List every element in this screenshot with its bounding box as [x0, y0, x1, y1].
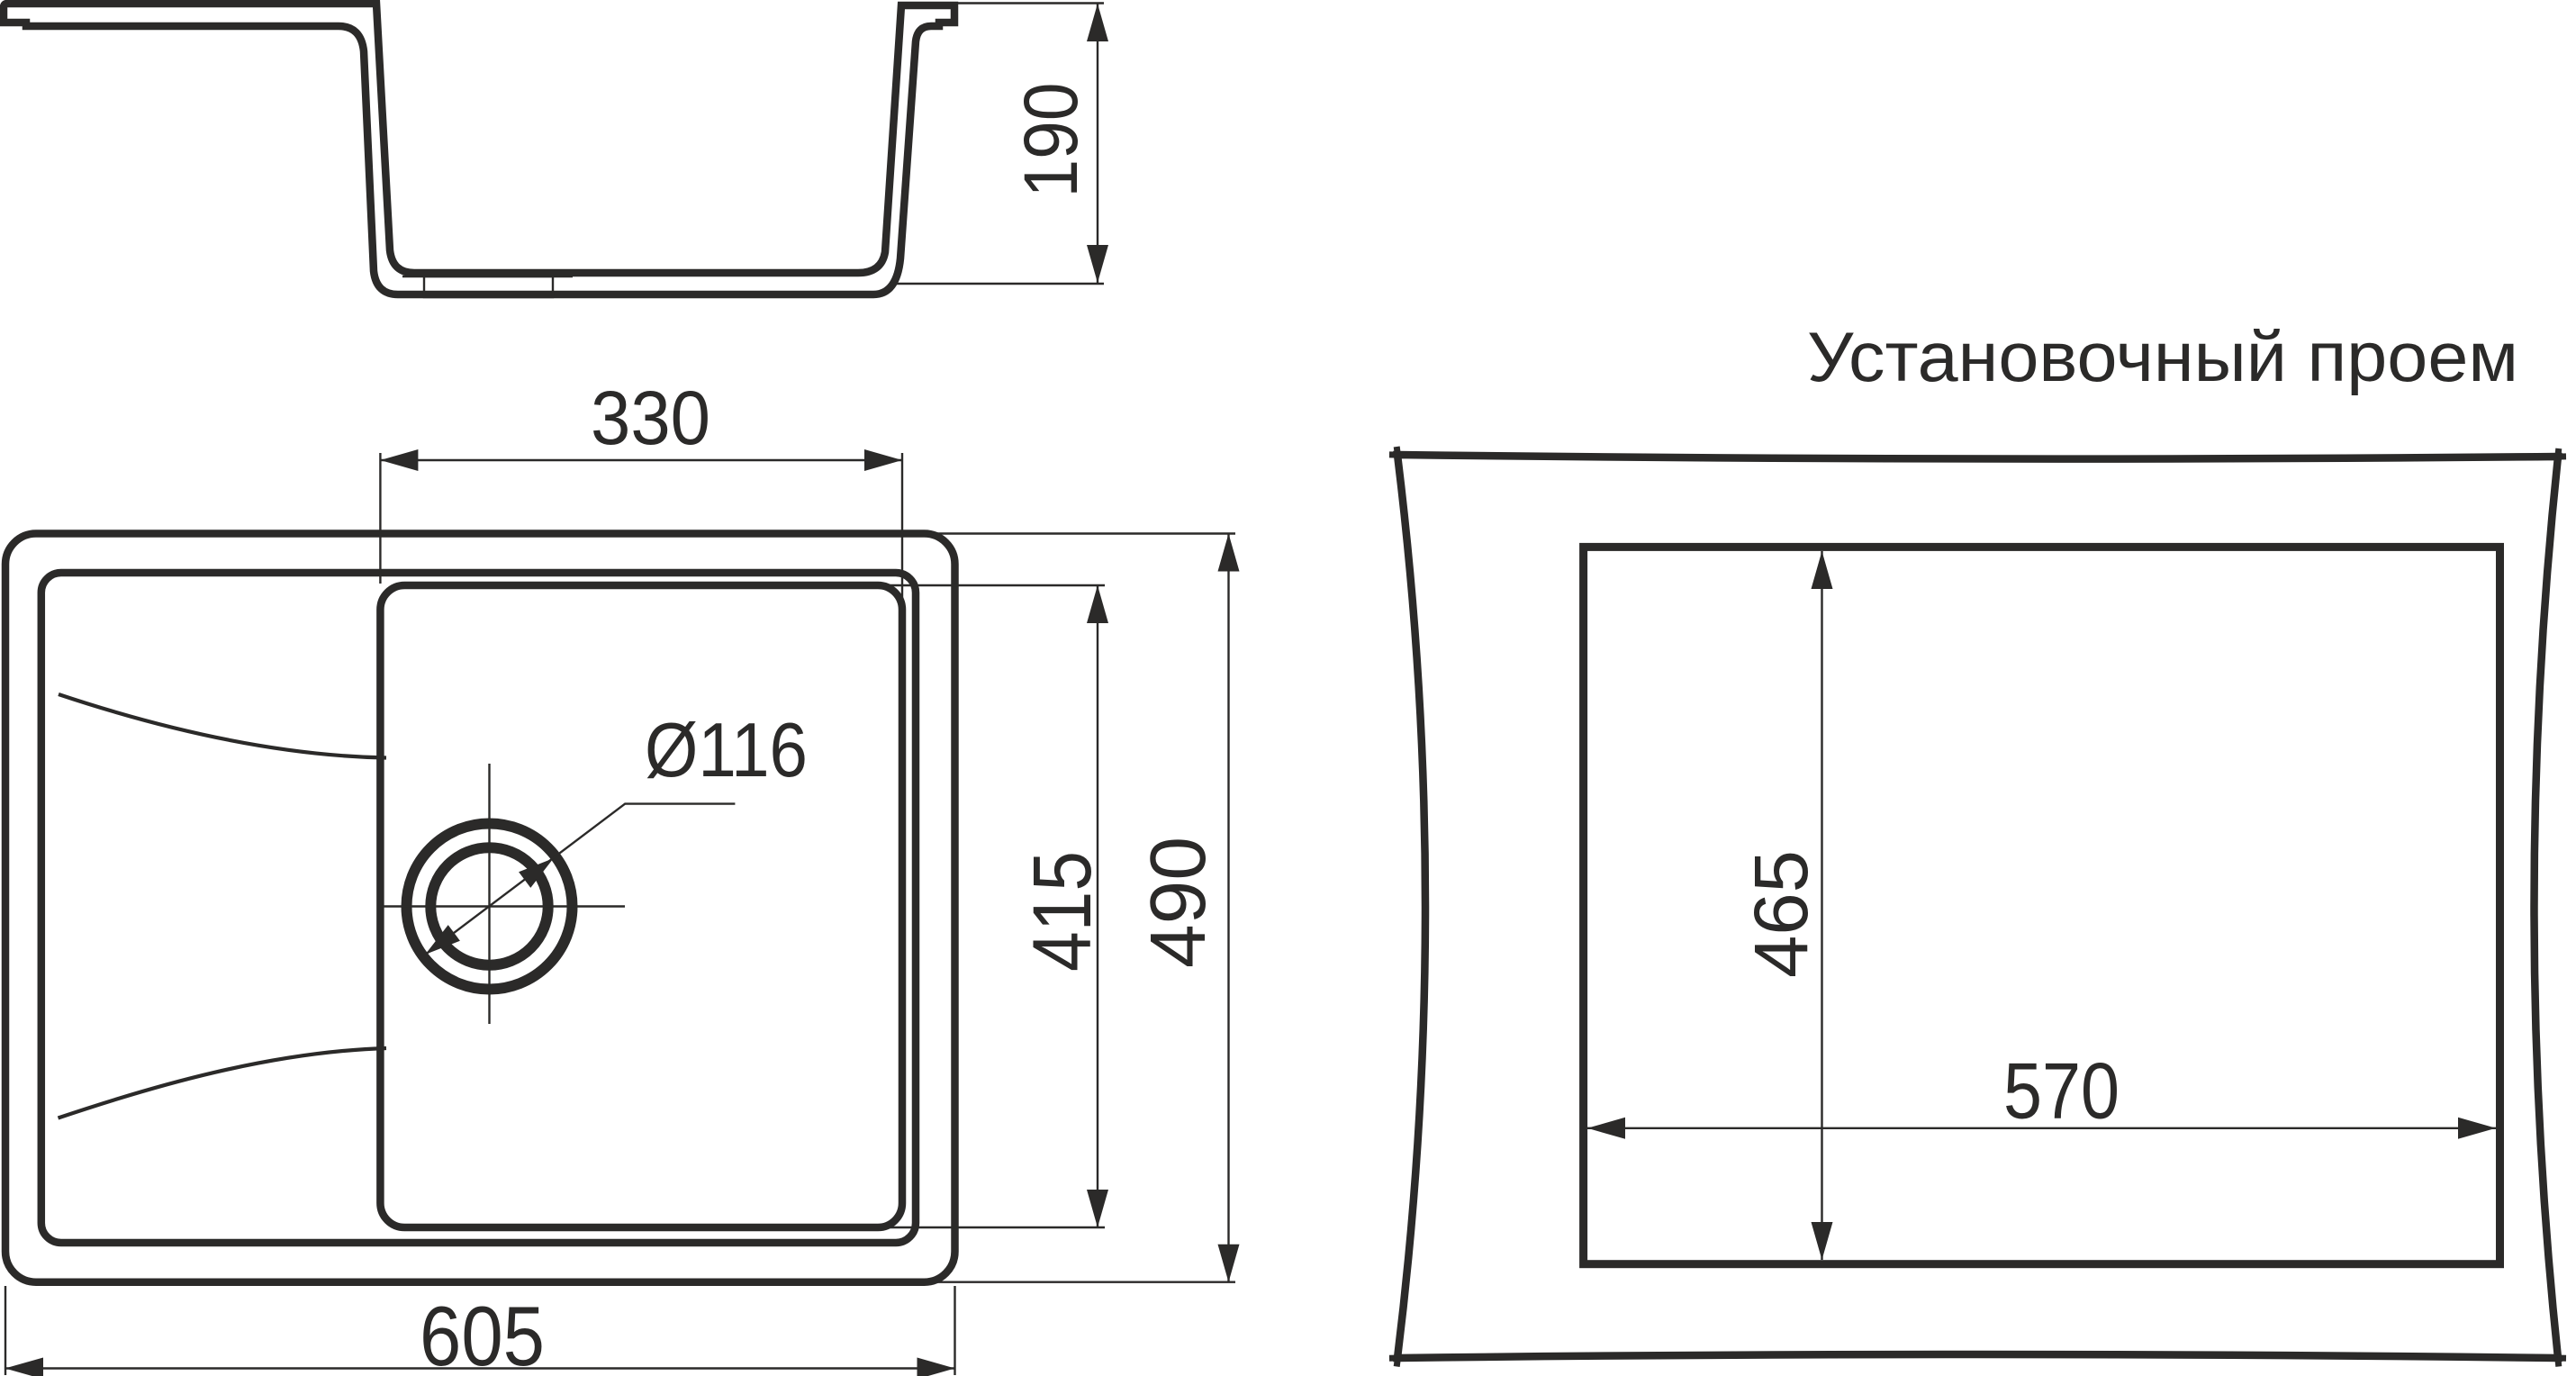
svg-text:190: 190 [1008, 83, 1093, 198]
svg-text:465: 465 [1739, 850, 1823, 978]
svg-text:415: 415 [1017, 851, 1108, 972]
svg-text:605: 605 [420, 1289, 545, 1376]
svg-text:570: 570 [2003, 1046, 2120, 1136]
svg-text:490: 490 [1134, 837, 1222, 968]
svg-text:330: 330 [591, 376, 710, 460]
svg-text:Установочный проем: Установочный проем [1807, 317, 2518, 396]
svg-text:Ø116: Ø116 [645, 708, 808, 793]
